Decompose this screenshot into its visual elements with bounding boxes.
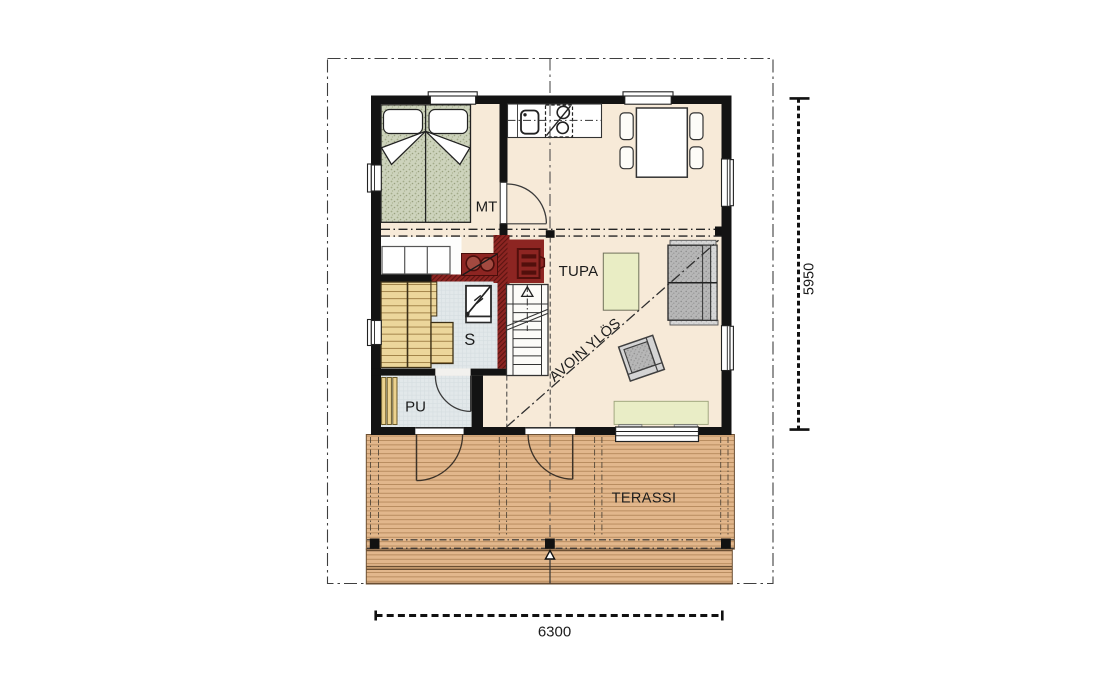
svg-text:MT: MT: [476, 199, 498, 216]
svg-text:PU: PU: [405, 399, 426, 416]
svg-text:TUPA: TUPA: [559, 263, 599, 280]
svg-text:6300: 6300: [538, 624, 571, 641]
svg-text:S: S: [464, 331, 475, 349]
svg-text:5950: 5950: [802, 263, 818, 295]
svg-text:TERASSI: TERASSI: [612, 491, 677, 507]
